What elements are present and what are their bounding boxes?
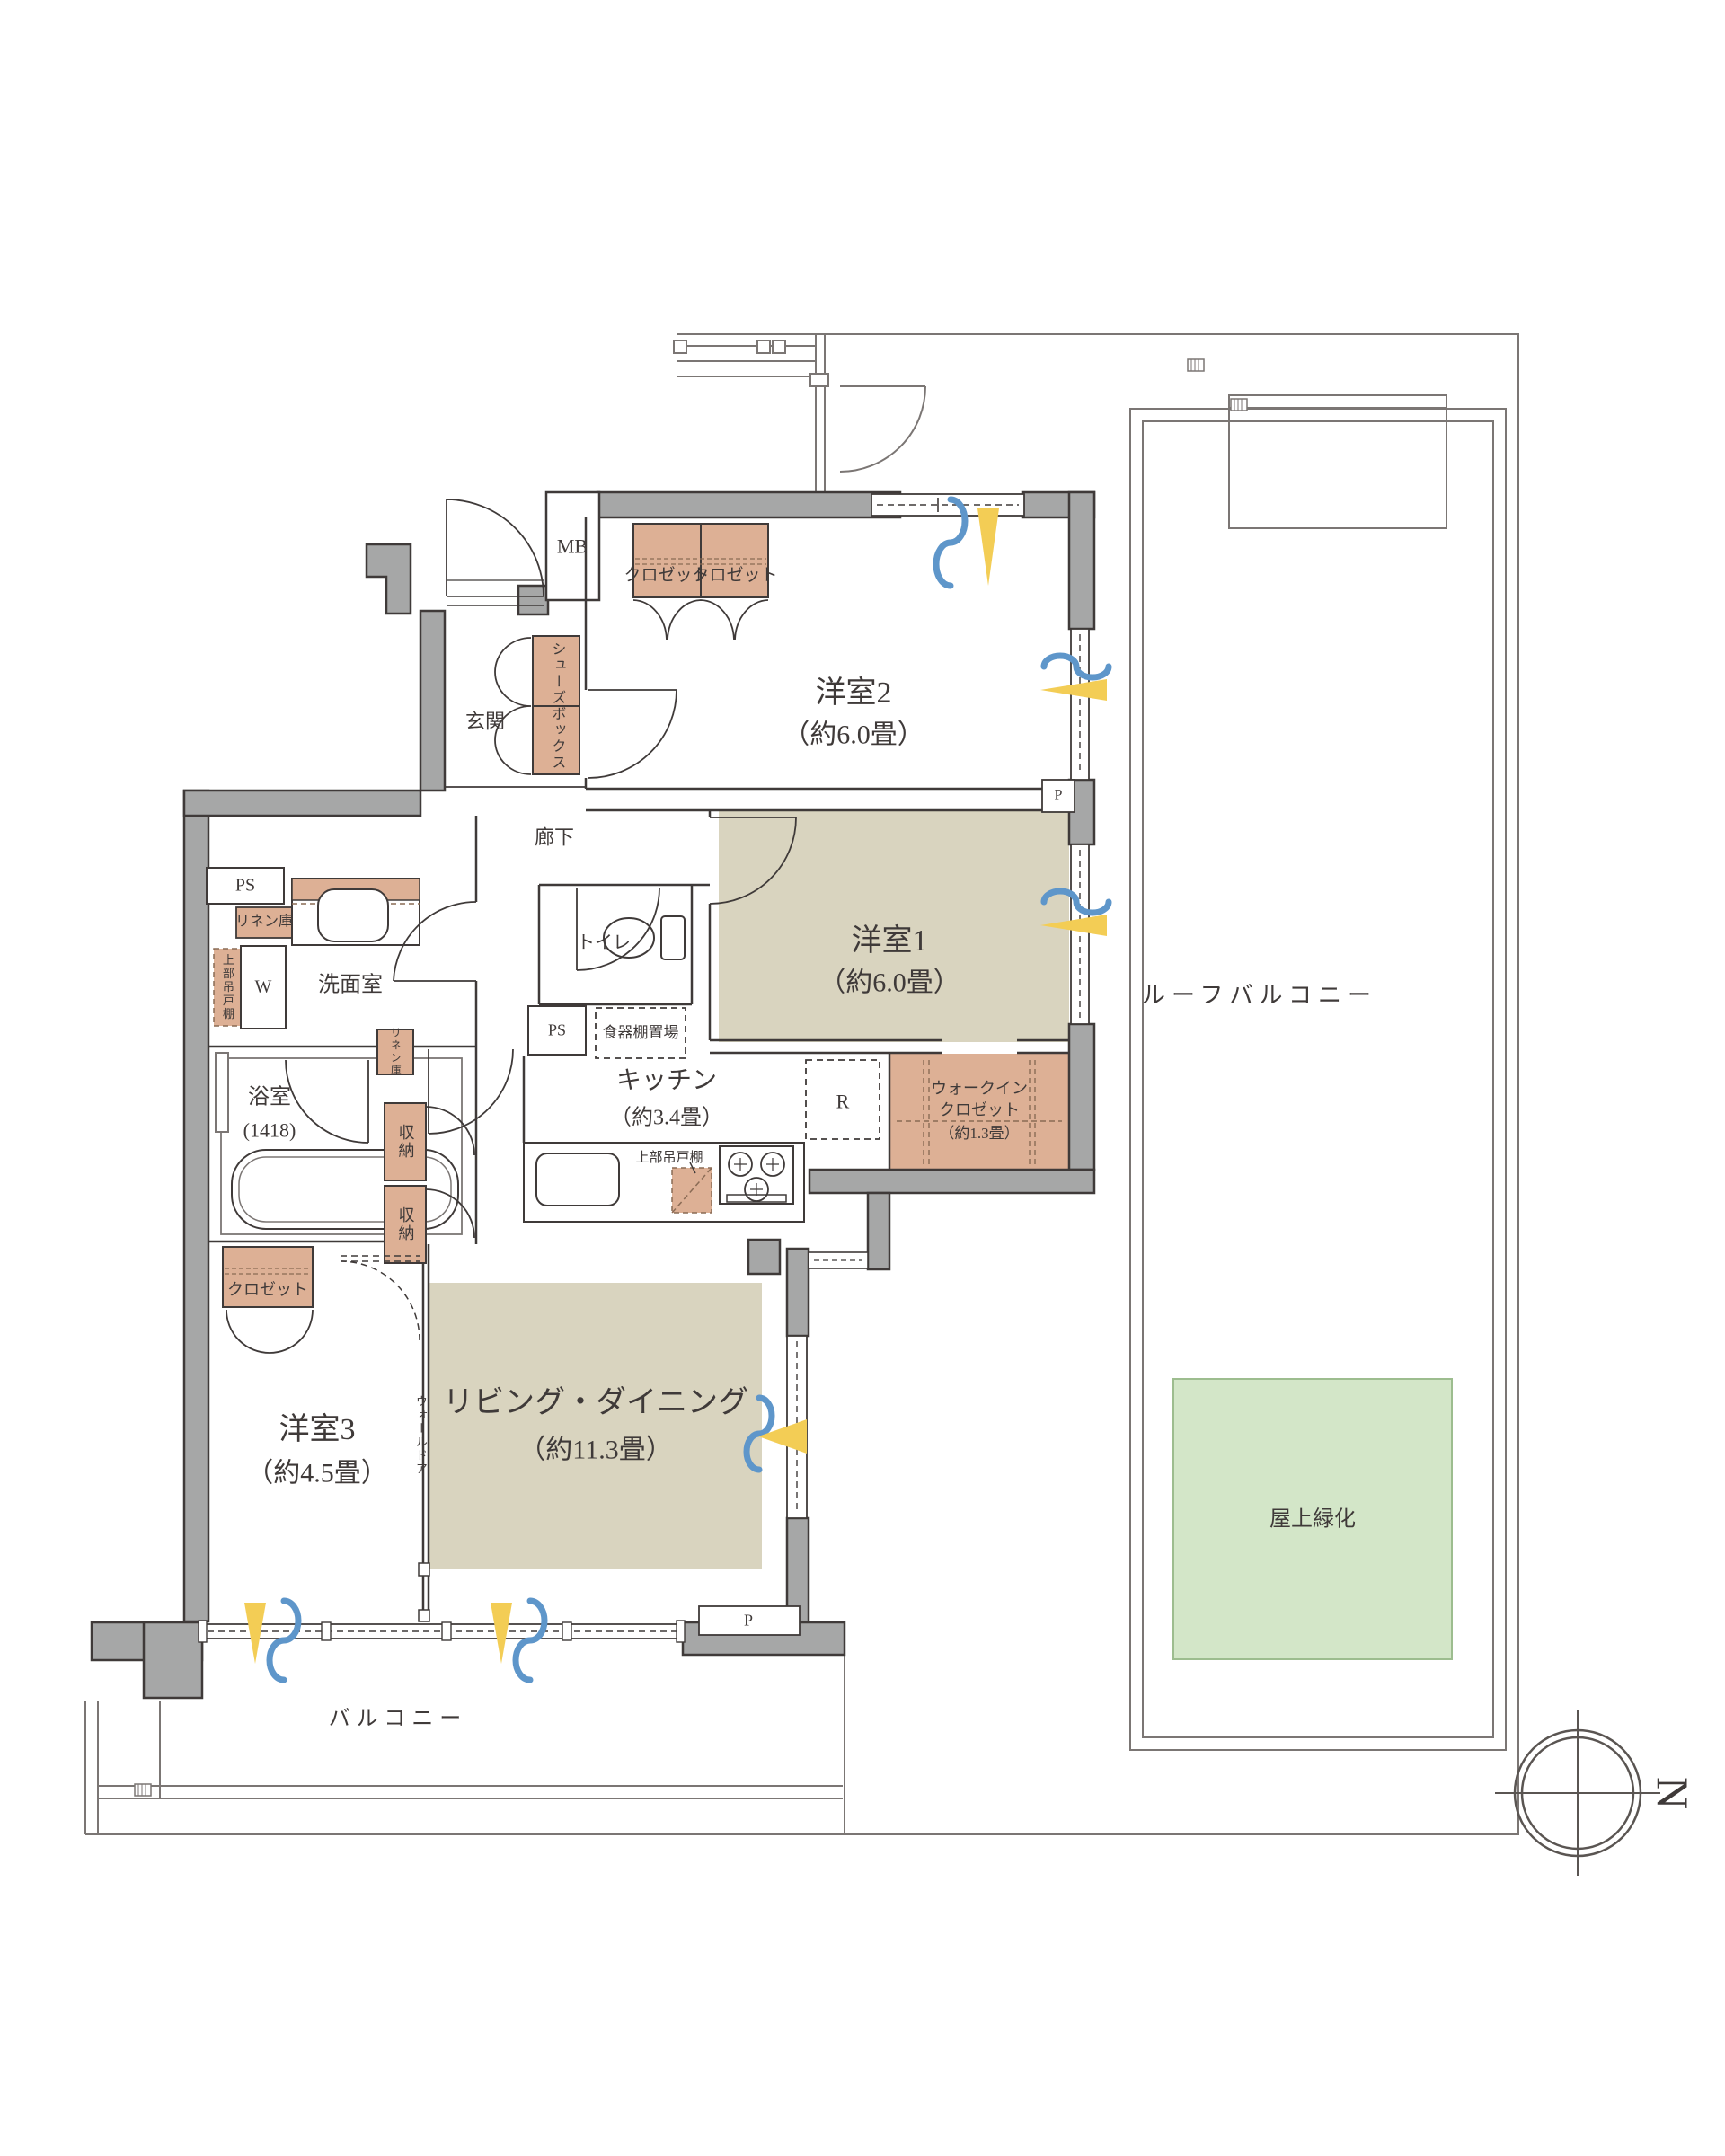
label-linen-2: リネン庫 [390, 1027, 402, 1077]
label-bedroom1: 洋室1 [852, 925, 928, 958]
label-upper-cabinet-k: 上部吊戸棚 [635, 1152, 703, 1166]
label-bedroom2: 洋室2 [816, 677, 892, 710]
label-wic-2: クロゼット [939, 1102, 1020, 1119]
label-shoes-box: シューズボックス [549, 641, 564, 771]
drain-icon [1231, 399, 1247, 411]
label-closet-2: クロゼット [692, 567, 777, 585]
label-ps-1: PS [235, 877, 255, 896]
window-marker-icon [977, 508, 999, 586]
wind-flow-icon [516, 1601, 544, 1680]
drain-icon [135, 1784, 151, 1796]
label-kitchen-size: （約3.4畳） [610, 1107, 723, 1129]
floor-plan: N MB クロゼット クロゼット 玄関 シューズボックス 廊下 洋室2 （約6.… [0, 0, 1725, 2156]
label-toilet: トイレ [577, 934, 631, 953]
label-bedroom3-size: （約4.5畳） [246, 1459, 388, 1488]
label-closet-3: クロゼット [227, 1282, 308, 1299]
compass: N [1495, 1710, 1698, 1876]
label-dish-shelf: 食器棚置場 [603, 1025, 679, 1041]
label-roof-balcony: ルーフバルコニー [1142, 983, 1377, 1007]
label-living-dining-size: （約11.3畳） [518, 1436, 672, 1464]
label-kitchen: キッチン [616, 1067, 717, 1093]
wash-basin [318, 889, 388, 941]
label-bath-size: (1418) [243, 1119, 296, 1140]
label-bedroom2-size: （約6.0畳） [783, 720, 924, 749]
wall-door-track-stop [419, 1563, 429, 1576]
label-hallway: 廊下 [535, 826, 574, 847]
label-bedroom1-size: （約6.0畳） [818, 968, 960, 997]
label-p-2: P [744, 1613, 753, 1630]
label-upper-cabinet-w: 上部吊戸棚 [221, 954, 234, 1021]
drain-icon [1188, 359, 1204, 371]
label-balcony: バルコニー [329, 1708, 468, 1730]
label-ps-2: PS [548, 1022, 566, 1039]
label-wic-3: （約1.3畳） [939, 1126, 1019, 1142]
label-wall-door: ウォールドア [414, 1395, 427, 1476]
label-bedroom3: 洋室3 [279, 1414, 356, 1446]
label-refrigerator: R [836, 1091, 850, 1111]
wall-door-track-stop [419, 1610, 429, 1621]
label-p-1: P [1055, 789, 1063, 804]
window-marker-icon [244, 1603, 266, 1664]
label-linen-1: リネン庫 [235, 915, 293, 931]
label-washer: W [255, 978, 272, 997]
living-dining-floor [429, 1283, 762, 1569]
window-marker-icon [758, 1419, 807, 1454]
label-storage-2: 収納 [397, 1206, 414, 1242]
label-meter-box: MB [557, 535, 588, 556]
compass-n-label: N [1648, 1777, 1698, 1809]
label-bath: 浴室 [248, 1086, 291, 1109]
label-washroom: 洗面室 [318, 974, 383, 996]
wind-flow-icon [1044, 656, 1109, 677]
label-entrance: 玄関 [465, 711, 505, 731]
wind-flow-icon [270, 1601, 298, 1680]
label-wic-1: ウォークイン [931, 1081, 1028, 1098]
window-marker-icon [491, 1603, 512, 1664]
label-storage-1: 収納 [397, 1124, 414, 1160]
floor-plan-drawing: N [0, 0, 1725, 2156]
label-green-roof: 屋上緑化 [1269, 1508, 1356, 1531]
label-living-dining: リビング・ダイニング [443, 1387, 748, 1419]
